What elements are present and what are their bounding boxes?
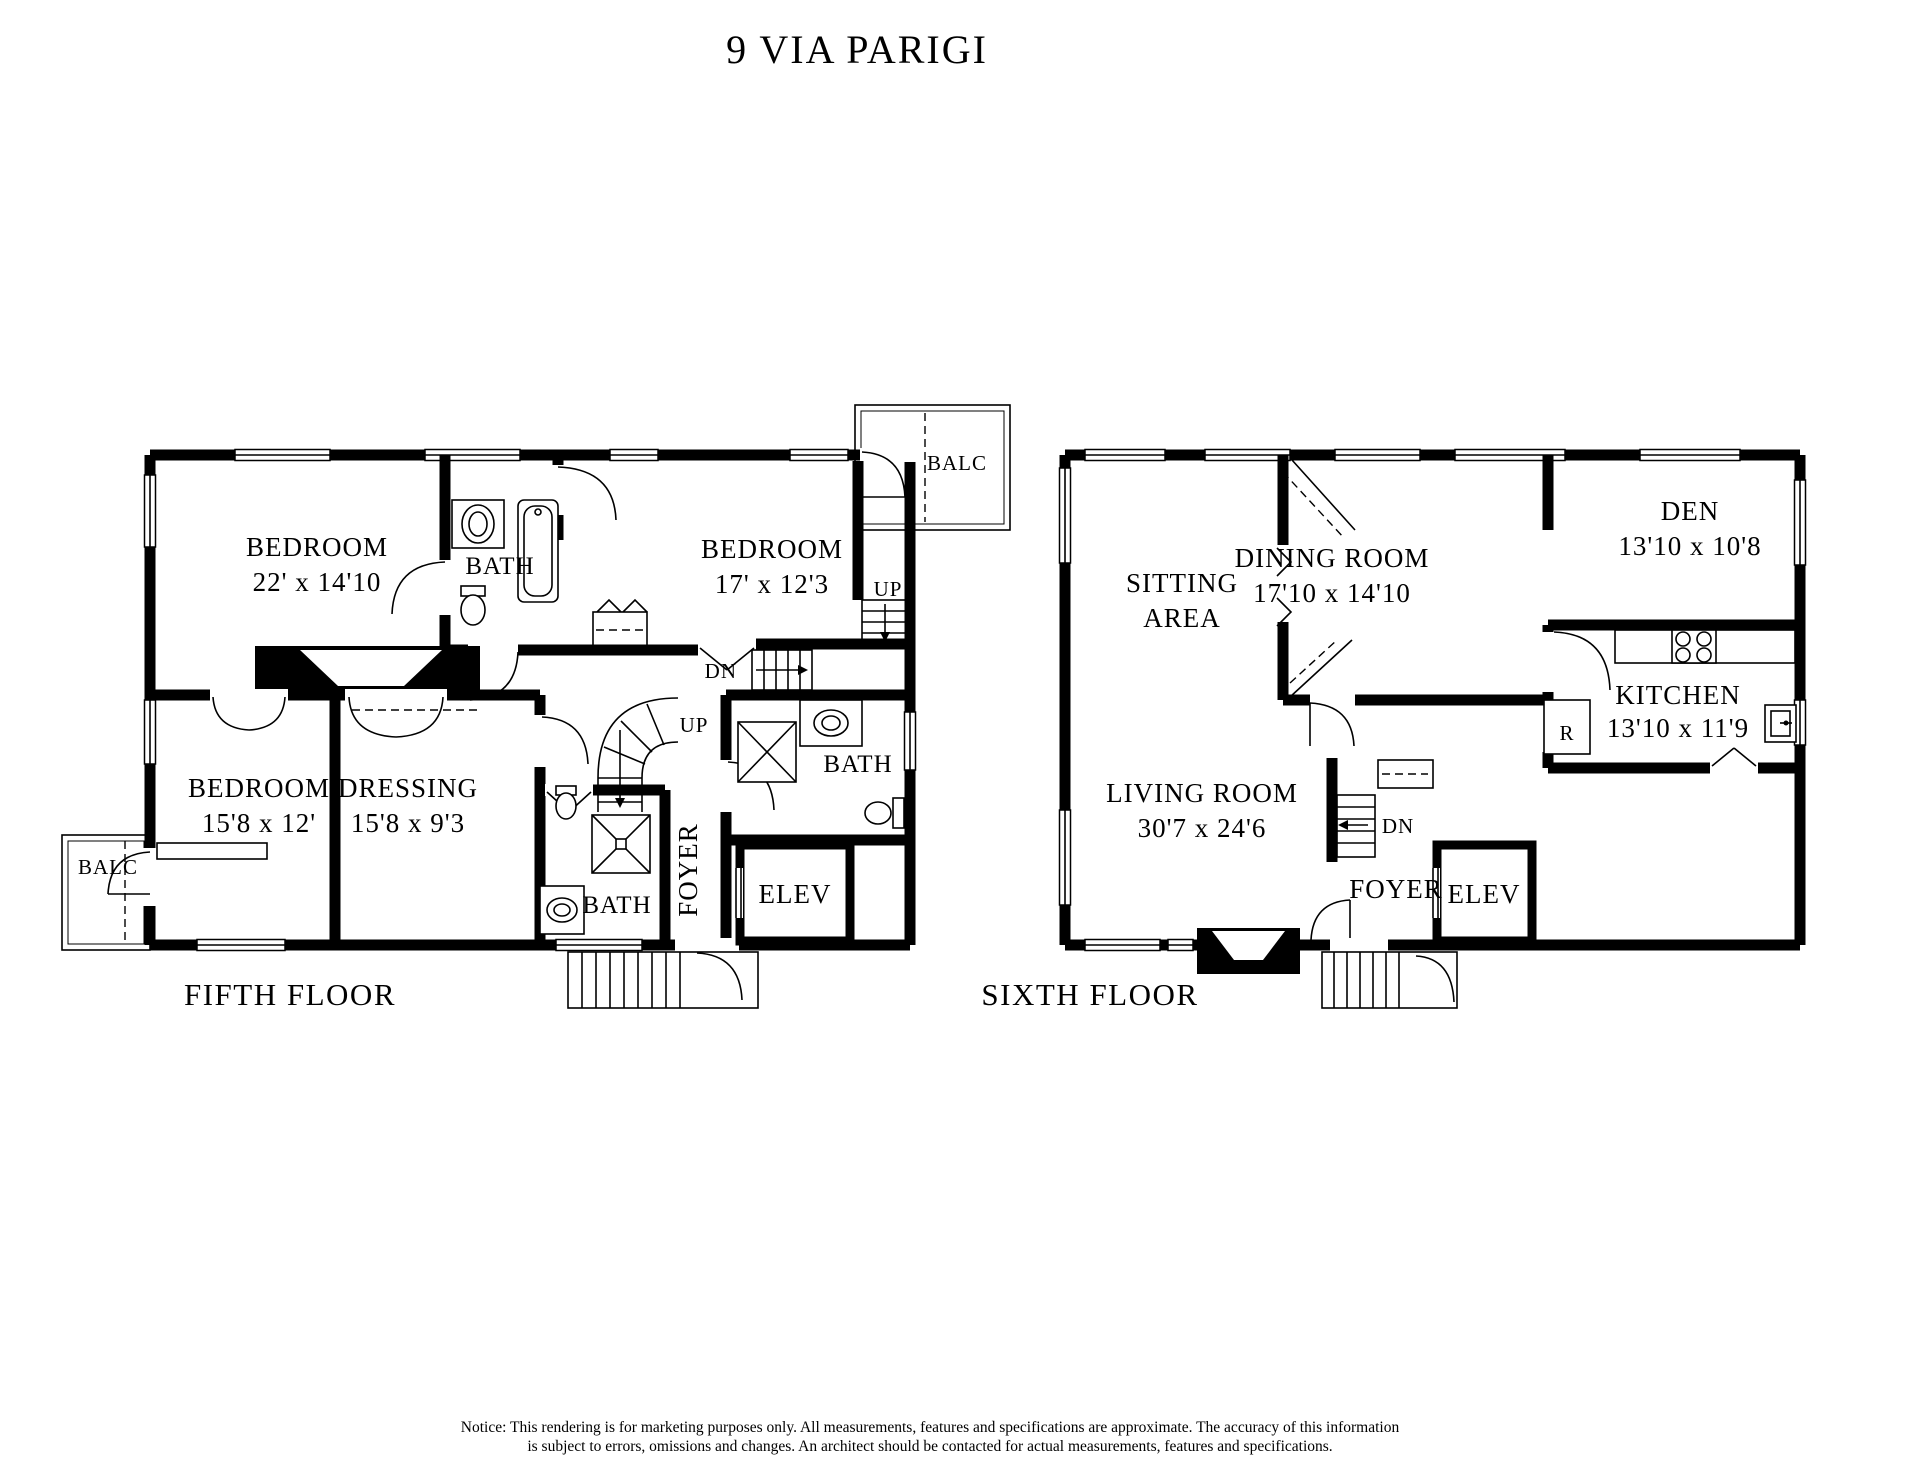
sixth-fireplace-bay (1197, 928, 1300, 974)
fifth-balcony-left: BALC (62, 835, 267, 950)
room-label-sitting-2: AREA (1143, 603, 1221, 633)
floorplan-page: 9 VIA PARIGI (0, 0, 1920, 1483)
fifth-floor-label: FIFTH FLOOR (184, 977, 396, 1012)
disclaimer-line-1: Notice: This rendering is for marketing … (0, 1418, 1860, 1437)
room-label-kitchen: KITCHEN (1615, 680, 1740, 710)
room-label-bedroom-large: BEDROOM (246, 532, 388, 562)
room-label-bedroom-right: BEDROOM (701, 534, 843, 564)
fifth-floor-plan: BALC BALC (62, 405, 1010, 1012)
room-label-sitting-1: SITTING (1126, 568, 1238, 598)
floorplan-drawing: BALC BALC (0, 0, 1920, 1483)
room-label-living: LIVING ROOM (1106, 778, 1298, 808)
room-label-bath-right: BATH (823, 751, 892, 778)
disclaimer-line-2: is subject to errors, omissions and chan… (0, 1437, 1860, 1456)
room-label-elev-fifth: ELEV (759, 879, 832, 909)
room-dims-den: 13'10 x 10'8 (1618, 531, 1761, 561)
room-dims-bedroom-right: 17' x 12'3 (715, 569, 829, 599)
room-dims-living: 30'7 x 24'6 (1138, 813, 1267, 843)
fifth-exterior-stair (568, 952, 758, 1008)
sixth-floor-label: SIXTH FLOOR (981, 977, 1198, 1012)
fifth-balcony-right: BALC (855, 405, 1010, 530)
sixth-stair-down: DN (1337, 795, 1414, 857)
room-label-foyer-fifth: FOYER (673, 823, 703, 917)
stair-up-center-label: UP (680, 713, 709, 737)
disclaimer-notice: Notice: This rendering is for marketing … (0, 1418, 1860, 1456)
stair-down-label: DN (705, 659, 737, 683)
fifth-stair-up-right: UP (862, 577, 908, 644)
room-dims-bedroom-large: 22' x 14'10 (253, 567, 382, 597)
stair-up-right-label: UP (874, 577, 903, 601)
room-label-dining: DINING ROOM (1235, 543, 1430, 573)
balcony-right-label: BALC (927, 451, 987, 475)
sixth-stair-down-label: DN (1382, 814, 1414, 838)
room-label-foyer-sixth: FOYER (1349, 874, 1443, 904)
sixth-exterior-stair (1322, 952, 1457, 1008)
refrigerator-label: R (1559, 721, 1574, 745)
room-dims-kitchen: 13'10 x 11'9 (1607, 713, 1749, 743)
room-dims-dining: 17'10 x 14'10 (1253, 578, 1411, 608)
balcony-left-label: BALC (78, 855, 138, 879)
room-label-bath-lower: BATH (582, 892, 651, 919)
room-label-bedroom-lower: BEDROOM (188, 773, 330, 803)
room-label-dressing: DRESSING (338, 773, 478, 803)
room-dims-dressing: 15'8 x 9'3 (351, 808, 465, 838)
sixth-room-labels: SITTING AREA DINING ROOM 17'10 x 14'10 D… (981, 496, 1761, 1012)
room-label-bath-top: BATH (465, 553, 534, 580)
room-label-den: DEN (1661, 496, 1720, 526)
room-label-elev-sixth: ELEV (1448, 879, 1521, 909)
sixth-floor-plan: R DN (981, 450, 1805, 1013)
room-dims-bedroom-lower: 15'8 x 12' (202, 808, 316, 838)
fifth-stair-down: DN (705, 650, 812, 690)
